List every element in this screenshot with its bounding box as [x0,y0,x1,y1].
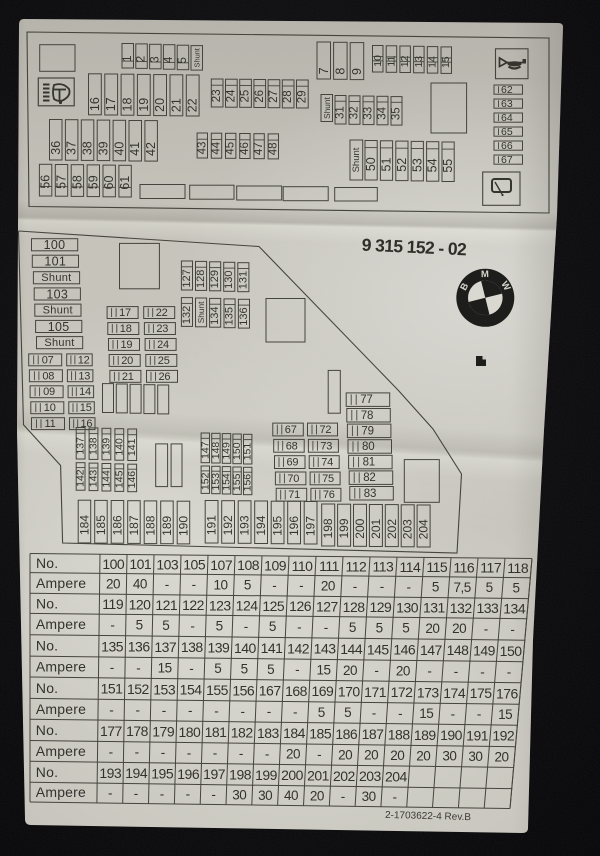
svg-text:-: - [165,577,169,592]
svg-text:147: 147 [420,642,443,658]
svg-text:20: 20 [425,621,439,636]
svg-text:191: 191 [205,515,219,535]
svg-text:-: - [265,746,269,761]
svg-text:118: 118 [507,560,529,576]
svg-text:180: 180 [178,724,201,740]
svg-text:128: 128 [343,599,366,615]
svg-text:145: 145 [367,641,390,657]
svg-text:-: - [380,579,384,594]
svg-text:20: 20 [396,663,410,678]
svg-text:20: 20 [153,98,167,112]
svg-text:-: - [297,620,301,635]
svg-text:81: 81 [363,457,375,469]
svg-text:-: - [353,579,357,594]
svg-text:Shunt: Shunt [322,96,332,118]
svg-text:37: 37 [65,141,79,155]
svg-text:122: 122 [182,597,205,613]
svg-text:138: 138 [88,437,100,455]
svg-text:133: 133 [476,600,499,616]
svg-text:-: - [108,786,112,801]
svg-text:-: - [427,664,431,679]
svg-text:20: 20 [321,579,335,594]
svg-text:177: 177 [100,723,123,739]
svg-text:31: 31 [335,106,347,119]
svg-text:192: 192 [221,515,235,535]
svg-text:146: 146 [393,642,416,658]
svg-text:8: 8 [333,68,347,75]
svg-text:187: 187 [362,726,385,742]
svg-text:29: 29 [296,90,308,103]
svg-text:09: 09 [43,386,55,398]
svg-text:-: - [241,704,245,719]
svg-text:67: 67 [501,154,513,166]
svg-text:114: 114 [399,559,421,575]
svg-text:30: 30 [232,787,246,802]
svg-text:23: 23 [211,89,223,102]
svg-text:129: 129 [209,270,221,288]
svg-text:132: 132 [181,306,193,324]
svg-text:197: 197 [203,766,226,782]
svg-text:-: - [407,579,411,594]
svg-text:41: 41 [128,142,142,156]
svg-text:18: 18 [120,323,132,335]
svg-text:-: - [244,619,248,634]
svg-text:55: 55 [441,159,455,173]
svg-text:168: 168 [285,683,308,699]
svg-text:150: 150 [500,643,523,659]
svg-text:119: 119 [102,596,124,612]
svg-text:184: 184 [78,515,92,535]
svg-text:178: 178 [126,723,149,739]
svg-text:138: 138 [181,639,204,655]
svg-text:2: 2 [136,56,148,62]
svg-text:68: 68 [286,440,298,452]
svg-text:-: - [190,618,194,633]
svg-text:143: 143 [314,641,337,657]
svg-text:183: 183 [257,725,280,741]
svg-text:21: 21 [122,371,134,383]
svg-text:40: 40 [284,788,298,803]
svg-text:136: 136 [128,639,151,655]
svg-text:137: 137 [75,437,87,455]
svg-text:5: 5 [486,580,493,595]
svg-text:-: - [267,704,271,719]
svg-text:185: 185 [309,726,332,742]
svg-text:140: 140 [113,438,125,456]
svg-text:-: - [214,704,218,719]
svg-text:53: 53 [410,158,424,172]
svg-text:5: 5 [349,620,356,635]
svg-text:30: 30 [468,749,482,764]
svg-text:101: 101 [129,556,152,572]
svg-text:56: 56 [39,175,53,189]
svg-text:110: 110 [292,558,314,574]
svg-text:-: - [211,787,215,802]
svg-text:13: 13 [413,56,425,68]
svg-text:-: - [188,703,192,718]
svg-text:9: 9 [350,68,364,75]
svg-text:144: 144 [340,641,363,657]
svg-text:169: 169 [311,683,334,699]
svg-text:46: 46 [239,142,251,155]
svg-text:131: 131 [423,600,446,616]
svg-text:Ampere: Ampere [36,575,86,591]
svg-text:-: - [189,661,193,676]
svg-text:135: 135 [224,307,236,325]
svg-text:142: 142 [287,640,310,656]
svg-text:196: 196 [177,766,200,782]
svg-text:105: 105 [183,557,206,573]
svg-text:-: - [324,620,328,635]
svg-text:167: 167 [259,683,282,699]
svg-text:72: 72 [320,424,332,436]
svg-text:No.: No. [36,555,58,571]
svg-text:201: 201 [369,518,383,538]
svg-text:50: 50 [364,157,378,171]
svg-text:75: 75 [322,473,334,485]
svg-text:151: 151 [101,681,124,697]
svg-text:189: 189 [414,727,437,743]
svg-text:126: 126 [289,598,312,614]
svg-text:Shunt: Shunt [351,147,362,172]
svg-text:20: 20 [338,747,352,762]
svg-text:17: 17 [104,97,118,111]
svg-text:-: - [317,747,321,762]
svg-text:109: 109 [264,558,287,574]
svg-text:130: 130 [223,271,235,289]
svg-text:61: 61 [118,176,132,190]
svg-text:14: 14 [427,56,439,68]
svg-text:30: 30 [362,789,376,804]
svg-text:116: 116 [453,559,475,575]
svg-text:23: 23 [156,323,168,335]
svg-text:20: 20 [310,789,324,804]
svg-text:125: 125 [262,598,285,614]
svg-text:-: - [134,786,138,801]
svg-text:-: - [162,703,166,718]
svg-text:20: 20 [390,748,404,763]
svg-text:195: 195 [151,765,174,781]
svg-text:135: 135 [101,638,124,654]
svg-text:185: 185 [94,515,108,535]
svg-text:176: 176 [496,685,519,701]
svg-text:188: 188 [143,515,157,535]
svg-text:-: - [109,702,113,717]
svg-text:30: 30 [258,788,272,803]
svg-text:186: 186 [335,726,358,742]
svg-text:20: 20 [364,748,378,763]
svg-text:111: 111 [319,558,339,574]
svg-text:Ampere: Ampere [36,743,86,759]
svg-text:170: 170 [338,684,361,700]
svg-text:3: 3 [149,56,161,62]
svg-text:20: 20 [343,663,357,678]
svg-text:141: 141 [126,438,138,456]
svg-text:199: 199 [255,767,278,783]
svg-text:204: 204 [417,519,431,539]
svg-text:123: 123 [209,597,232,613]
svg-text:-: - [160,786,164,801]
svg-text:181: 181 [205,724,228,740]
svg-text:10: 10 [213,577,227,592]
svg-text:5: 5 [402,621,409,636]
svg-text:190: 190 [440,727,463,743]
svg-text:149: 149 [473,643,496,659]
svg-text:Shunt: Shunt [44,337,74,349]
svg-text:100: 100 [44,238,66,252]
svg-text:193: 193 [238,515,252,535]
svg-text:-: - [110,618,114,633]
svg-text:103: 103 [156,556,179,572]
svg-text:186: 186 [111,515,125,535]
svg-text:20: 20 [416,748,430,763]
svg-text:-: - [393,790,397,805]
svg-text:188: 188 [388,726,411,742]
svg-text:156: 156 [232,682,255,698]
svg-text:-: - [480,664,484,679]
svg-text:63: 63 [501,98,513,110]
svg-text:19: 19 [137,98,151,112]
svg-text:103: 103 [46,287,68,301]
svg-text:108: 108 [237,557,260,573]
svg-text:-: - [135,745,139,760]
svg-text:-: - [374,663,378,678]
svg-text:35: 35 [391,107,403,120]
svg-text:47: 47 [253,142,265,155]
svg-text:Shunt: Shunt [41,272,71,284]
svg-text:15: 15 [440,56,452,68]
svg-text:204: 204 [385,769,408,785]
svg-text:115: 115 [426,559,448,575]
svg-text:-: - [451,706,455,721]
svg-text:5: 5 [432,580,439,595]
svg-text:13: 13 [78,370,90,382]
svg-text:20: 20 [106,576,120,591]
svg-text:132: 132 [450,600,473,616]
svg-text:-: - [398,706,402,721]
svg-text:-: - [507,665,511,680]
svg-text:202: 202 [385,519,399,539]
svg-text:-: - [192,577,196,592]
svg-text:39: 39 [97,141,111,155]
svg-text:10: 10 [372,55,384,67]
svg-text:175: 175 [470,685,493,701]
svg-text:20: 20 [452,621,466,636]
svg-text:5: 5 [267,662,274,677]
svg-text:19: 19 [121,339,133,351]
svg-text:-: - [239,746,243,761]
svg-text:16: 16 [88,97,102,111]
svg-text:-: - [293,705,297,720]
svg-text:100: 100 [102,556,125,572]
svg-text:198: 198 [321,518,335,538]
svg-text:202: 202 [333,768,356,784]
svg-text:27: 27 [268,90,280,103]
svg-text:173: 173 [417,684,440,700]
svg-text:-: - [186,787,190,802]
svg-text:5: 5 [512,581,519,596]
svg-text:105: 105 [48,320,70,334]
svg-text:134: 134 [503,601,526,617]
svg-text:15: 15 [316,663,330,678]
svg-text:25: 25 [158,355,170,367]
svg-text:11: 11 [385,55,397,66]
svg-text:71: 71 [288,489,300,501]
svg-text:33: 33 [363,107,375,120]
svg-text:174: 174 [443,685,466,701]
svg-text:Shunt: Shunt [192,48,201,67]
svg-text:121: 121 [155,597,178,613]
svg-text:26: 26 [254,90,266,103]
svg-text:190: 190 [176,516,190,536]
svg-text:36: 36 [49,141,63,155]
svg-text:137: 137 [154,639,177,655]
svg-text:5: 5 [214,661,221,676]
svg-text:18: 18 [121,98,135,112]
svg-text:5: 5 [162,618,169,633]
svg-text:Ampere: Ampere [36,701,86,717]
svg-text:40: 40 [133,577,147,592]
svg-text:153: 153 [153,681,176,697]
svg-text:5: 5 [344,705,351,720]
svg-text:83: 83 [364,488,376,500]
svg-text:54: 54 [426,158,440,172]
svg-text:5: 5 [269,619,276,634]
svg-text:32: 32 [349,107,361,120]
svg-text:66: 66 [501,140,513,152]
svg-text:Shunt: Shunt [196,301,206,323]
svg-text:193: 193 [99,765,122,781]
svg-text:15: 15 [419,706,433,721]
svg-text:10: 10 [44,402,56,414]
svg-text:-: - [187,745,191,760]
svg-text:134: 134 [209,307,221,325]
svg-text:192: 192 [492,728,515,744]
svg-text:-: - [272,578,276,593]
svg-text:-: - [484,622,488,637]
svg-text:189: 189 [160,515,174,535]
svg-text:21: 21 [169,98,183,112]
svg-text:143: 143 [88,470,100,488]
svg-text:17: 17 [119,307,131,319]
svg-text:80: 80 [362,441,374,453]
svg-text:-: - [477,707,481,722]
svg-text:62: 62 [501,84,513,96]
svg-text:-: - [299,578,303,593]
svg-text:141: 141 [261,640,284,656]
svg-text:No.: No. [36,638,58,654]
svg-text:40: 40 [112,142,126,156]
svg-text:15: 15 [80,402,92,414]
svg-text:171: 171 [364,684,387,700]
svg-text:151: 151 [242,443,254,461]
svg-text:78: 78 [361,410,373,422]
svg-text:148: 148 [447,642,470,658]
svg-text:184: 184 [283,725,306,741]
svg-text:155: 155 [206,682,229,698]
svg-text:67: 67 [285,424,297,436]
svg-text:194: 194 [254,515,268,535]
svg-text:79: 79 [361,425,373,437]
svg-text:5: 5 [216,619,223,634]
svg-text:25: 25 [240,90,252,103]
svg-text:-: - [341,789,345,804]
svg-text:195: 195 [271,515,285,535]
svg-text:Ampere: Ampere [36,659,86,675]
svg-text:112: 112 [345,558,367,574]
svg-text:-: - [136,660,140,675]
svg-text:51: 51 [380,158,394,172]
svg-text:5: 5 [241,662,248,677]
svg-text:4: 4 [163,56,175,63]
svg-text:187: 187 [127,515,141,535]
svg-text:Shunt: Shunt [43,305,73,317]
svg-text:12: 12 [78,354,90,366]
svg-text:203: 203 [359,768,382,784]
svg-text:-: - [213,746,217,761]
svg-text:139: 139 [100,438,112,456]
svg-text:128: 128 [195,270,207,288]
svg-text:58: 58 [70,175,84,189]
svg-text:59: 59 [86,175,100,189]
svg-text:26: 26 [159,371,171,383]
svg-text:Ampere: Ampere [36,616,86,632]
svg-text:182: 182 [231,725,254,741]
svg-text:7,5: 7,5 [454,580,471,595]
svg-text:5: 5 [177,57,189,63]
svg-text:201: 201 [307,768,330,784]
svg-text:43: 43 [196,142,208,155]
svg-text:146: 146 [126,471,138,489]
svg-text:142: 142 [75,469,87,487]
svg-text:77: 77 [360,394,372,406]
svg-text:38: 38 [81,141,95,155]
svg-text:127: 127 [316,599,339,615]
svg-text:74: 74 [321,457,333,469]
svg-text:34: 34 [377,106,389,119]
svg-text:-: - [454,664,458,679]
svg-text:101: 101 [44,255,66,269]
svg-text:-: - [372,706,376,721]
svg-text:107: 107 [210,557,233,573]
svg-text:200: 200 [353,518,367,538]
svg-text:-: - [161,745,165,760]
svg-text:200: 200 [281,767,304,783]
svg-text:194: 194 [125,765,148,781]
svg-text:113: 113 [372,559,394,575]
svg-text:152: 152 [127,681,150,697]
svg-text:154: 154 [180,682,203,698]
svg-text:191: 191 [466,727,489,743]
svg-text:127: 127 [181,269,193,287]
svg-text:20: 20 [121,355,133,367]
svg-text:124: 124 [236,598,259,614]
svg-text:24: 24 [225,89,237,102]
svg-text:No.: No. [36,680,58,696]
svg-text:196: 196 [287,516,301,536]
svg-text:64: 64 [501,112,513,124]
svg-text:28: 28 [282,90,294,103]
svg-text:48: 48 [267,143,279,156]
svg-text:14: 14 [79,386,91,398]
svg-text:44: 44 [211,141,223,154]
svg-text:20: 20 [286,747,300,762]
svg-text:11: 11 [45,418,56,430]
svg-text:-: - [510,622,514,637]
svg-text:140: 140 [234,640,257,656]
svg-text:-: - [295,662,299,677]
svg-text:57: 57 [55,175,69,189]
